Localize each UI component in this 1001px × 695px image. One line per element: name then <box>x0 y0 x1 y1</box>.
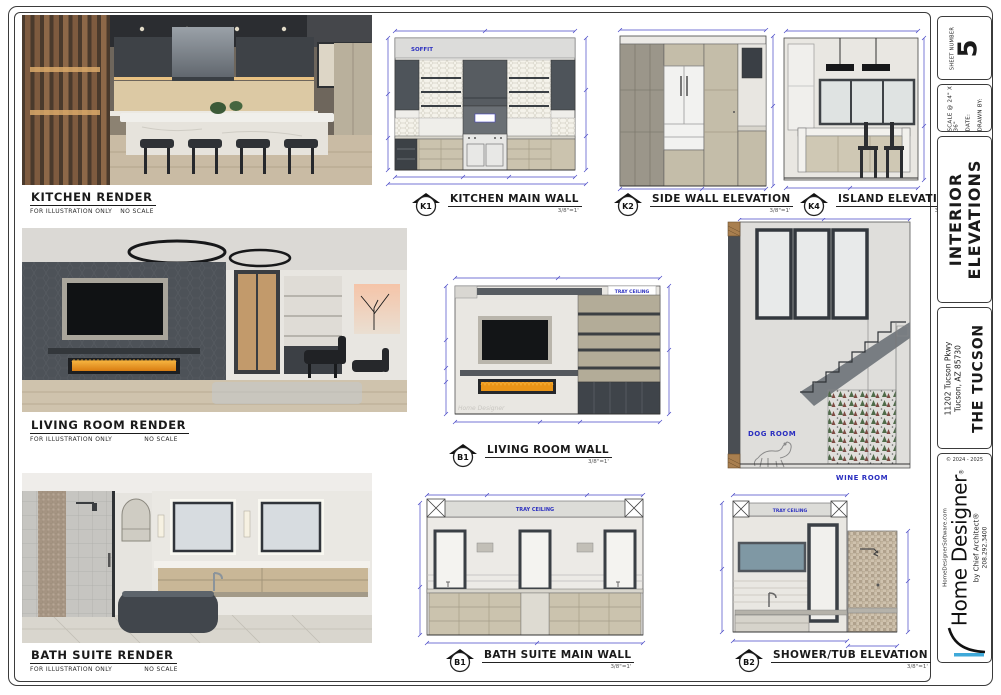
soffit-note: SOFFIT <box>411 47 433 53</box>
side-wall-drawing <box>610 28 778 196</box>
address-line1: 11202 Tucson Pkwy <box>943 341 953 415</box>
tray-ceiling-note: TRAY CEILING <box>773 508 808 514</box>
sheet-title-line1: INTERIOR <box>946 173 965 266</box>
elevation-callout-living: B1 <box>447 442 479 468</box>
bath-render-image <box>22 473 372 647</box>
brand-phone: 208.292.3400 <box>981 526 988 568</box>
living-render-note: FOR ILLUSTRATION ONLYNO SCALE <box>30 436 189 443</box>
kitchen-main-wall-label: K1 KITCHEN MAIN WALL 3/8"=1' <box>410 191 582 217</box>
elevation-callout-k4: K4 <box>798 191 830 217</box>
plan-name-box: 11202 Tucson Pkwy Tucson, AZ 85730 THE T… <box>937 307 992 449</box>
scale-label: SCALE @ 24" X 36" <box>947 85 959 131</box>
sheet-title-box: INTERIOR ELEVATIONS <box>937 136 992 303</box>
living-room-wall-label: B1 LIVING ROOM WALL 3/8"=1' <box>447 442 612 468</box>
brand-tagline: by Chief Architect® <box>972 512 980 581</box>
island-label: K4 ISLAND ELEVATION 3/8"=1' <box>798 191 959 217</box>
side-wall-label: K2 SIDE WALL ELEVATION 3/8"=1' <box>612 191 793 217</box>
sheet-title-line2: ELEVATIONS <box>965 160 984 280</box>
island-drawing <box>778 28 928 198</box>
shower-door <box>809 525 837 621</box>
drawing-sheet: KITCHEN RENDER FOR ILLUSTRATION ONLYNO S… <box>0 0 1001 695</box>
living-render-label: LIVING ROOM RENDER FOR ILLUSTRATION ONLY… <box>30 414 189 443</box>
copyright-text: © 2024 - 2025 <box>938 457 991 463</box>
logo-box: © 2024 - 2025 HomeDesignerSoftware.com H… <box>937 453 992 663</box>
svg-text:B2: B2 <box>743 658 755 667</box>
chief-architect-logo-icon <box>944 627 986 657</box>
date-label: DATE: <box>965 113 971 131</box>
dimension-lines <box>738 218 912 221</box>
elevation-callout-k1: K1 <box>410 191 442 217</box>
bath-render-title: BATH SUITE RENDER <box>30 648 177 664</box>
svg-text:B1: B1 <box>454 658 466 667</box>
elevation-callout-bath: B1 <box>444 647 476 673</box>
elevation-callout-shower: B2 <box>733 647 765 673</box>
kitchen-render-label: KITCHEN RENDER FOR ILLUSTRATION ONLYNO S… <box>30 186 162 215</box>
kitchen-render-title: KITCHEN RENDER <box>30 190 156 206</box>
elevation-callout-k2: K2 <box>612 191 644 217</box>
dog-wine-room-drawing: DOG ROOM WINE ROOM <box>726 218 922 492</box>
address-line2: Tucson, AZ 85730 <box>953 345 963 412</box>
shower-tub-drawing: TRAY CEILING <box>712 493 924 655</box>
bath-render-note: FOR ILLUSTRATION ONLYNO SCALE <box>30 666 186 673</box>
tray-ceiling-note: TRAY CEILING <box>615 289 650 295</box>
glass-panels <box>757 230 867 318</box>
svg-text:K4: K4 <box>808 202 820 211</box>
svg-text:B1: B1 <box>457 453 469 462</box>
brand-name: Home Designer <box>949 474 970 625</box>
wine-rack <box>828 390 896 464</box>
plan-name: THE TUCSON <box>970 324 986 433</box>
bath-suite-main-wall-label: B1 BATH SUITE MAIN WALL 3/8"=1' <box>444 647 634 673</box>
svg-text:K1: K1 <box>420 202 432 211</box>
drawn-by-label: DRAWN BY: <box>977 98 983 131</box>
tile-shower-wall <box>848 531 897 632</box>
dog-room-label: DOG ROOM <box>748 430 796 438</box>
shower-tub-label: B2 SHOWER/TUB ELEVATION 3/8"=1' <box>733 647 931 673</box>
sheet-number: 5 <box>955 39 981 57</box>
bath-render-label: BATH SUITE RENDER FOR ILLUSTRATION ONLYN… <box>30 644 186 673</box>
kitchen-render-image <box>22 15 372 189</box>
living-render-image <box>22 228 407 416</box>
svg-text:K2: K2 <box>622 202 634 211</box>
bath-suite-main-wall-drawing: TRAY CEILING <box>415 493 655 655</box>
scale-date-box: SCALE @ 24" X 36" DATE: DRAWN BY: <box>937 84 992 132</box>
wine-room-label: WINE ROOM <box>836 474 888 482</box>
kitchen-main-wall-drawing: SOFFIT <box>383 28 593 192</box>
sheet-number-box: SHEET NUMBER 5 <box>937 16 992 80</box>
brand-registered-mark: ® <box>951 468 972 474</box>
watermark: Home Designer <box>458 405 505 412</box>
tray-ceiling-note: TRAY CEILING <box>516 507 554 513</box>
living-room-wall-drawing: TRAY CEILING Home Designer <box>438 272 676 434</box>
living-render-title: LIVING ROOM RENDER <box>30 418 189 434</box>
kitchen-render-note: FOR ILLUSTRATION ONLYNO SCALE <box>30 208 162 215</box>
